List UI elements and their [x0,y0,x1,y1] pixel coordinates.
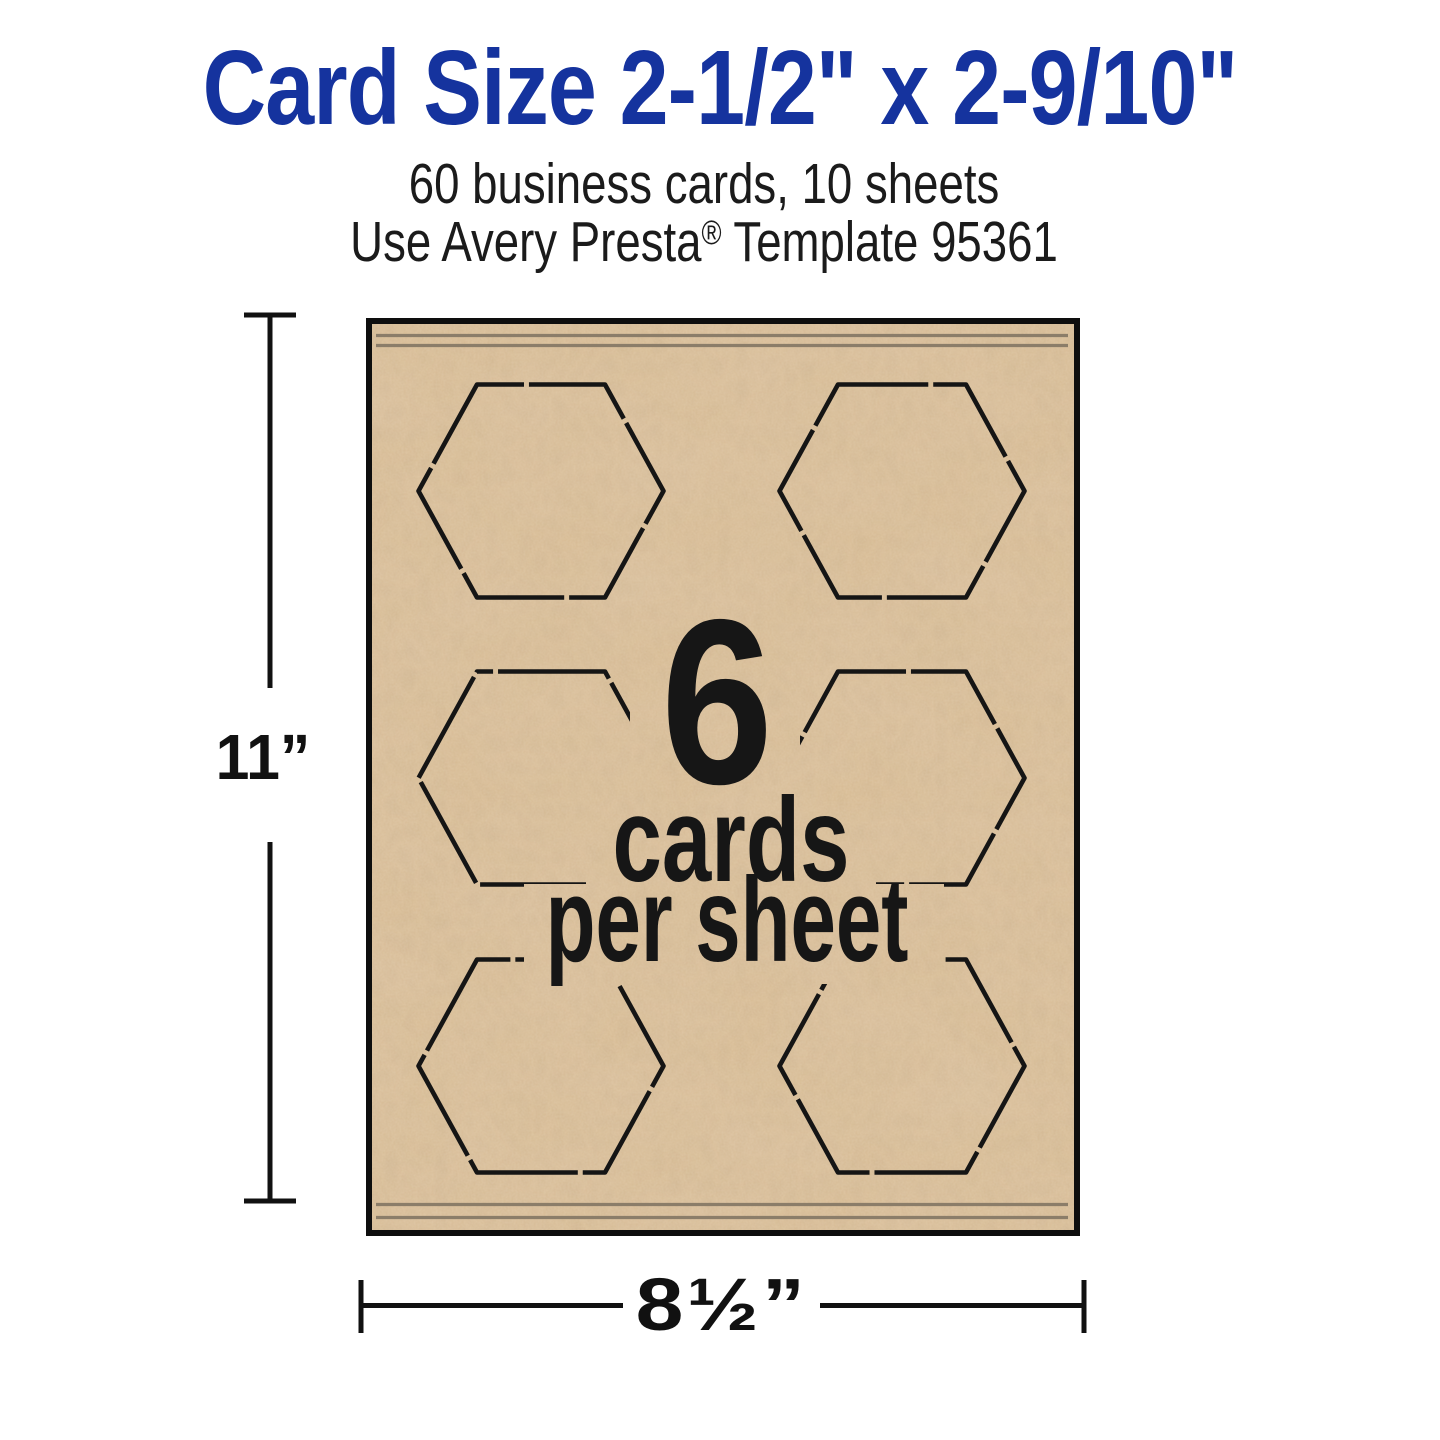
diagram-canvas: Card Size 2-1/2" x 2-9/10" 60 business c… [0,0,1440,1440]
registered-trademark-symbol: ® [702,213,722,252]
cards-caption-line2: per sheet [546,852,909,986]
subtitle-template-suffix: Template 95361 [722,209,1058,273]
page-title: Card Size 2-1/2" x 2-9/10" [203,28,1238,147]
subtitle-counts: 60 business cards, 10 sheets [409,151,1000,215]
product-diagram-page: Card Size 2-1/2" x 2-9/10" 60 business c… [0,0,1440,1440]
height-dimension-label: 11” [216,722,311,794]
sheet-diagram: 6 cards per sheet [369,321,1077,1233]
subtitle-template-prefix: Use Avery Presta [350,209,702,273]
width-dimension-label: 8½” [636,1263,809,1346]
